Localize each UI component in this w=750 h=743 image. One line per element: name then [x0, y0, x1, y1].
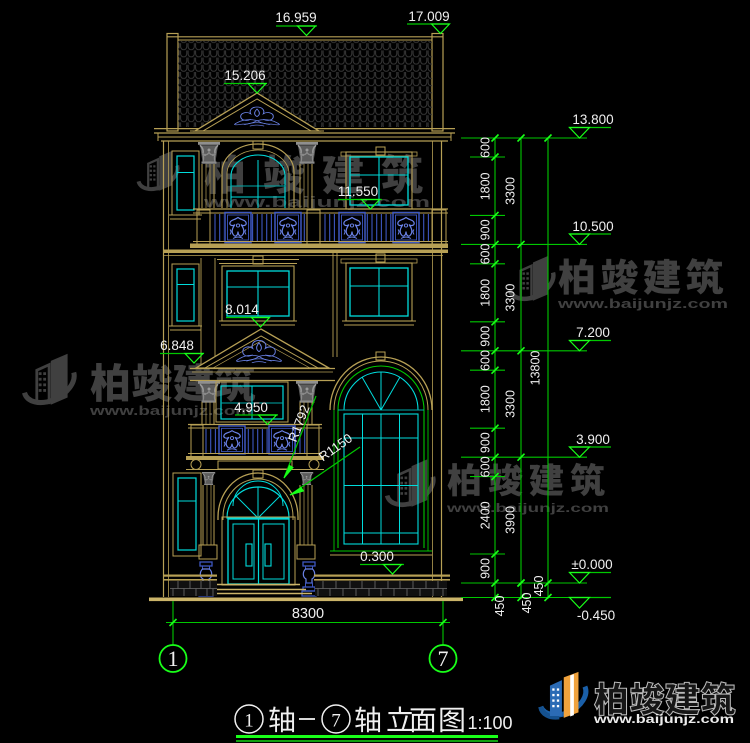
- svg-text:7: 7: [438, 646, 449, 671]
- svg-text:450: 450: [532, 576, 546, 597]
- svg-text:600: 600: [479, 456, 493, 477]
- svg-text:www.baijunjz.com: www.baijunjz.com: [89, 403, 252, 418]
- svg-text:www.baijunjz.com: www.baijunjz.com: [593, 714, 734, 726]
- svg-text:600: 600: [479, 350, 493, 371]
- svg-text:900: 900: [479, 326, 493, 347]
- svg-text:±0.000: ±0.000: [571, 557, 612, 572]
- svg-text:www.baijunjz.com: www.baijunjz.com: [556, 296, 728, 311]
- svg-text:13.800: 13.800: [572, 112, 613, 127]
- svg-text:1: 1: [168, 646, 179, 671]
- svg-text:11.550: 11.550: [338, 184, 378, 199]
- svg-text:3300: 3300: [504, 177, 518, 205]
- svg-text:900: 900: [479, 558, 493, 579]
- svg-text:1800: 1800: [479, 172, 493, 200]
- svg-text:-0.450: -0.450: [577, 608, 615, 623]
- svg-text:6.848: 6.848: [160, 338, 194, 353]
- svg-text:2400: 2400: [479, 501, 493, 529]
- svg-text:3300: 3300: [504, 390, 518, 418]
- svg-text:7.200: 7.200: [576, 325, 610, 340]
- svg-text:13800: 13800: [529, 351, 543, 386]
- svg-text:450: 450: [493, 596, 507, 617]
- svg-text:7: 7: [331, 711, 341, 732]
- svg-text:10.500: 10.500: [572, 219, 613, 234]
- svg-text:www.baijunjz.com: www.baijunjz.com: [445, 501, 609, 515]
- svg-text:1800: 1800: [479, 279, 493, 307]
- svg-text:17.009: 17.009: [408, 9, 449, 24]
- svg-text:3300: 3300: [504, 284, 518, 312]
- svg-text:1800: 1800: [479, 385, 493, 413]
- svg-text:600: 600: [479, 244, 493, 265]
- svg-text:600: 600: [479, 137, 493, 158]
- svg-text:4.950: 4.950: [234, 400, 268, 415]
- svg-text:3900: 3900: [504, 506, 518, 534]
- svg-text:900: 900: [479, 219, 493, 240]
- svg-text:0.300: 0.300: [360, 549, 394, 564]
- svg-text:3.900: 3.900: [576, 432, 610, 447]
- svg-text:1: 1: [244, 711, 254, 732]
- svg-text:8300: 8300: [292, 606, 324, 622]
- svg-text:1:100: 1:100: [467, 713, 512, 733]
- svg-text:16.959: 16.959: [275, 10, 316, 25]
- svg-text:8.014: 8.014: [225, 302, 259, 317]
- svg-text:900: 900: [479, 432, 493, 453]
- svg-text:15.206: 15.206: [224, 68, 265, 83]
